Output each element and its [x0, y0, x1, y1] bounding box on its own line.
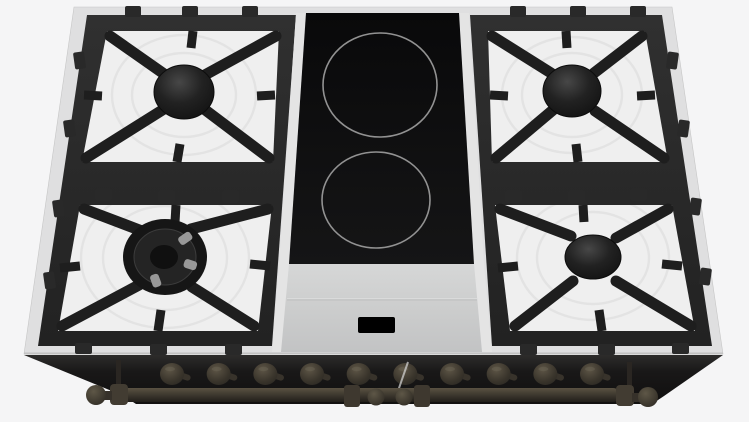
- knob-body: [580, 363, 604, 385]
- burner-cap: [543, 65, 601, 117]
- gas-wok-burner-front-left: [58, 188, 272, 331]
- knob-highlight: [492, 367, 502, 371]
- handle-bracket-center-left: [344, 385, 360, 407]
- knob-body: [160, 363, 184, 385]
- knob-highlight: [305, 367, 315, 371]
- burner-cap: [154, 65, 214, 119]
- knob-highlight: [258, 367, 268, 371]
- knob-highlight: [445, 367, 455, 371]
- knob-body: [253, 363, 277, 385]
- gas-module-left: [38, 6, 296, 355]
- gas-burner-rear-right: [488, 31, 668, 162]
- knob-highlight: [165, 367, 175, 371]
- gas-module-right: [470, 6, 712, 355]
- knob-highlight: [538, 367, 548, 371]
- handle-bar: [112, 388, 620, 402]
- gas-burner-rear-left: [82, 31, 279, 162]
- knob-body: [300, 363, 324, 385]
- knob-body: [393, 363, 417, 385]
- handle-center-ball-left: [368, 389, 385, 406]
- wok-burner-cap: [150, 245, 178, 269]
- control-display-window: [358, 317, 395, 333]
- knob-highlight: [585, 367, 595, 371]
- handle-center-ball-right: [396, 389, 413, 406]
- knob-body: [533, 363, 557, 385]
- front-apron: [281, 264, 482, 352]
- knob-body: [487, 363, 511, 385]
- product-render-stage: Top-down product render of a 90 cm dual-…: [0, 0, 749, 422]
- cooktop-render: [0, 0, 749, 422]
- knob-body: [347, 363, 371, 385]
- knob-body: [207, 363, 231, 385]
- burner-cap: [565, 235, 621, 279]
- knob-highlight: [352, 367, 362, 371]
- handle-bracket-center-right: [414, 385, 430, 407]
- handle-collar-right: [616, 385, 634, 406]
- handle-collar-left: [110, 384, 128, 405]
- ceramic-module: [272, 13, 492, 352]
- ceramic-glass-panel: [289, 13, 474, 264]
- handle-finial-left: [86, 385, 106, 405]
- gas-burner-front-right: [495, 196, 695, 331]
- handle-finial-right: [638, 387, 658, 407]
- knob-highlight: [212, 367, 222, 371]
- knob-body: [440, 363, 464, 385]
